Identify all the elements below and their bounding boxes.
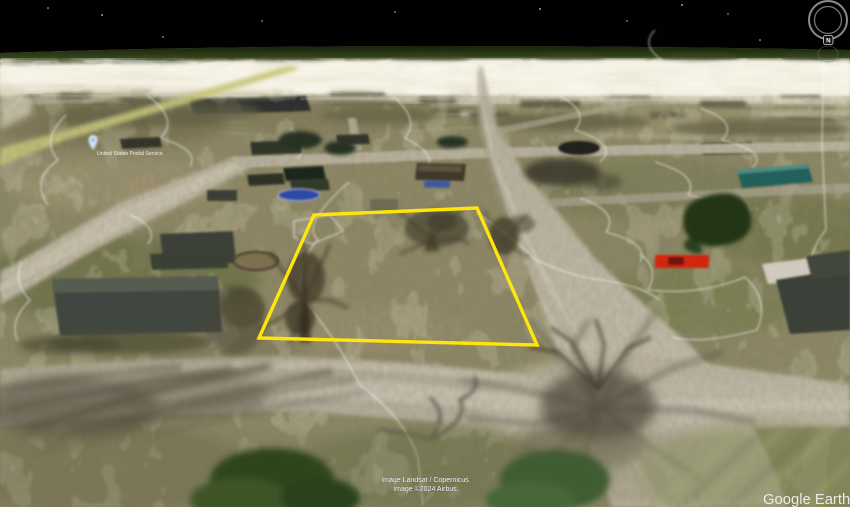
- svg-text:Google Earth: Google Earth: [763, 492, 850, 507]
- svg-text:Image Landsat / Copernicus: Image Landsat / Copernicus: [381, 477, 469, 484]
- svg-text:United States Postal Service: United States Postal Service: [97, 151, 163, 157]
- svg-text:N: N: [826, 38, 831, 45]
- svg-text:Image ©2024 Airbus: Image ©2024 Airbus: [393, 485, 457, 493]
